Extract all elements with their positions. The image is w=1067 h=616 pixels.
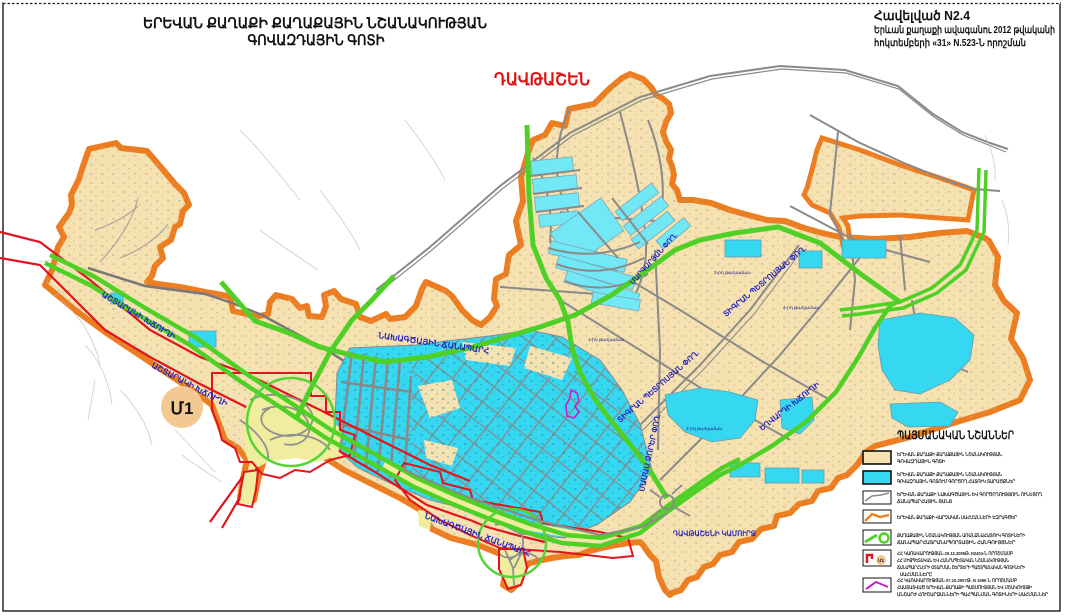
svg-text:ԳՈՎԱԶԴԱՅԻՆ ԳՈՏԻ: ԳՈՎԱԶԴԱՅԻՆ ԳՈՏԻ bbox=[248, 33, 386, 49]
svg-text:Մ1: Մ1 bbox=[878, 558, 885, 563]
svg-text:ՀՀ ՄԻՋՊԵՏԱԿԱՆ ԵՎ ՀԱՆՐԱՊԵՏԱԿԱՆ: ՀՀ ՄԻՋՊԵՏԱԿԱՆ ԵՎ ՀԱՆՐԱՊԵՏԱԿԱՆ ՆՇԱՆԱԿՈՒԹՅ… bbox=[897, 558, 1009, 564]
svg-text:ԵՐԵՎԱՆ ՔԱՂԱՔԻ ՔԱՂԱՔԱՅԻՆ ՆՇԱՆԱԿ: ԵՐԵՎԱՆ ՔԱՂԱՔԻ ՔԱՂԱՔԱՅԻՆ ՆՇԱՆԱԿՈՒԹՅԱՆ bbox=[897, 452, 1002, 458]
svg-text:ԱՆՇԱՐԺ ՀՈՒՇԱՐՁԱՆՆԵՐԻ ՊԱՀՊԱՆՄԱՆ: ԱՆՇԱՐԺ ՀՈՒՇԱՐՁԱՆՆԵՐԻ ՊԱՀՊԱՆՄԱՆ ԳՈՏԻՆԵՐԻ … bbox=[897, 591, 1049, 598]
svg-text:ԳՈՎԱԶԴԱՅԻՆ ԳՈՏՈՒՄ ԳՈՐԾՈՂ ՀԱՏՈՒ: ԳՈՎԱԶԴԱՅԻՆ ԳՈՏՈՒՄ ԳՈՐԾՈՂ ՀԱՏՈՒԿ ՏԱՐԱԾՔՆԵ… bbox=[897, 479, 1016, 485]
svg-text:ՃԱՆԱՊԱՐՀՆԵՐԻ ՕՏԱՐՄԱՆ ՇԵՐՏԵՐԻ Պ: ՃԱՆԱՊԱՐՀՆԵՐԻ ՕՏԱՐՄԱՆ ՇԵՐՏԵՐԻ ՊԱՇՏՊԱՆԱԿԱՆ… bbox=[897, 564, 1026, 571]
svg-text:հոկտեմբերի «31» N.523-Ն որ: հոկտեմբերի «31» N.523-Ն որոշման bbox=[874, 37, 1026, 49]
svg-text:ՃԱՆԱՊԱՐՀԱՅԻՆ ՑԱՆՑ: ՃԱՆԱՊԱՐՀԱՅԻՆ ՑԱՆՑ bbox=[897, 499, 952, 505]
svg-text:Երևան քաղաքի ավագանու 2012 թվա: Երևան քաղաքի ավագանու 2012 թվականի bbox=[874, 25, 1055, 36]
svg-text:Հավելված N2.4: Հավելված N2.4 bbox=[874, 8, 971, 23]
svg-text:ՊԱՅՄԱՆԱԿԱՆ ՆՇԱՆՆԵՐ: ՊԱՅՄԱՆԱԿԱՆ ՆՇԱՆՆԵՐ bbox=[897, 429, 1014, 442]
svg-text:ՃԱՆԱՊԱՐՀԱՏՐԱՆՍՊՈՐՏԱՅԻՆ ՀԱՆԳՈՒՅ: ՃԱՆԱՊԱՐՀԱՏՐԱՆՍՊՈՐՏԱՅԻՆ ՀԱՆԳՈՒՅՑՆԵՐ bbox=[897, 539, 1016, 546]
svg-text:ԵՐԵՎԱՆ ՔԱՂԱՔԻ ՔԱՂԱՔԱՅԻՆ ՆՇԱՆԱԿ: ԵՐԵՎԱՆ ՔԱՂԱՔԻ ՔԱՂԱՔԱՅԻՆ ՆՇԱՆԱԿՈՒԹՅԱՆ bbox=[897, 472, 1002, 478]
svg-text:ԵՐԵՎԱՆ ՔԱՂԱՔԻ ՔԱՂԱՔԱՅԻՆ ՆՇԱՆԱԿ: ԵՐԵՎԱՆ ՔԱՂԱՔԻ ՔԱՂԱՔԱՅԻՆ ՆՇԱՆԱԿՈՒԹՅԱՆ bbox=[143, 16, 487, 32]
svg-text:ՍԱՀՄԱՆՆԵՐԸ: ՍԱՀՄԱՆՆԵՐԸ bbox=[900, 571, 932, 578]
svg-text:ՔԱՂԱՔԱՅԻՆ ՆՇԱՆԱԿՈՒԹՅԱՆ ԱՌԱՆՁՆԱ: ՔԱՂԱՔԱՅԻՆ ՆՇԱՆԱԿՈՒԹՅԱՆ ԱՌԱՆՁՆԱՀԱՏՈՒԿ ԳՈՏ… bbox=[897, 533, 1026, 539]
svg-text:ՀՀ ԿԱՌԱՎԱՐՈՒԹՅԱՆ 29.12.2005Թ.: ՀՀ ԿԱՌԱՎԱՐՈՒԹՅԱՆ 29.12.2005Թ. N2404-Ն ՈՐ… bbox=[897, 551, 1013, 557]
svg-text:ԴԱՎԹԱՇԵՆ: ԴԱՎԹԱՇԵՆ bbox=[494, 70, 590, 89]
svg-text:Մ1: Մ1 bbox=[171, 399, 194, 418]
svg-text:ԵՐԵՎԱՆ ՔԱՂԱՔԻ ՆԱԽԱԳԾԱՅԻՆ ԵՎ ԳՈ: ԵՐԵՎԱՆ ՔԱՂԱՔԻ ՆԱԽԱԳԾԱՅԻՆ ԵՎ ԳՈՐԾՈՂՈՒԹՅՈՒ… bbox=[897, 492, 1042, 498]
svg-text:ԳՈՎԱԶԴԱՅԻՆ ԳՈՏԻ: ԳՈՎԱԶԴԱՅԻՆ ԳՈՏԻ bbox=[897, 459, 946, 465]
svg-text:ՀՀ ԿԱՌԱՎԱՐՈՒԹՅԱՆ 07.10.2007Թ.: ՀՀ ԿԱՌԱՎԱՐՈՒԹՅԱՆ 07.10.2007Թ. N 1595 Ն Ո… bbox=[897, 578, 1017, 584]
svg-text:ՀԱՍՏԱՏՎԱԾ ԵՐԵՎԱՆ ՔԱՂԱՔԻ ՊԱՏՄՈՒ: ՀԱՍՏԱՏՎԱԾ ԵՐԵՎԱՆ ՔԱՂԱՔԻ ՊԱՏՄՈՒԹՅԱՆ ԵՎ ՄՇ… bbox=[897, 584, 1033, 591]
svg-text:ԵՐԵՎԱՆ ՔԱՂԱՔԻ ՎԱՐՉԱԿԱՆ ՍԱՀՄԱՆՆ: ԵՐԵՎԱՆ ՔԱՂԱՔԻ ՎԱՐՉԱԿԱՆ ՍԱՀՄԱՆՆԵՐԻ ԵԶՐԱԳԾ… bbox=[897, 514, 1018, 521]
svg-text:ԴԱՎԹԱՇԵՆԻ ԿԱՄՈՒՐՋ: ԴԱՎԹԱՇԵՆԻ ԿԱՄՈՒՐՋ bbox=[673, 529, 756, 538]
